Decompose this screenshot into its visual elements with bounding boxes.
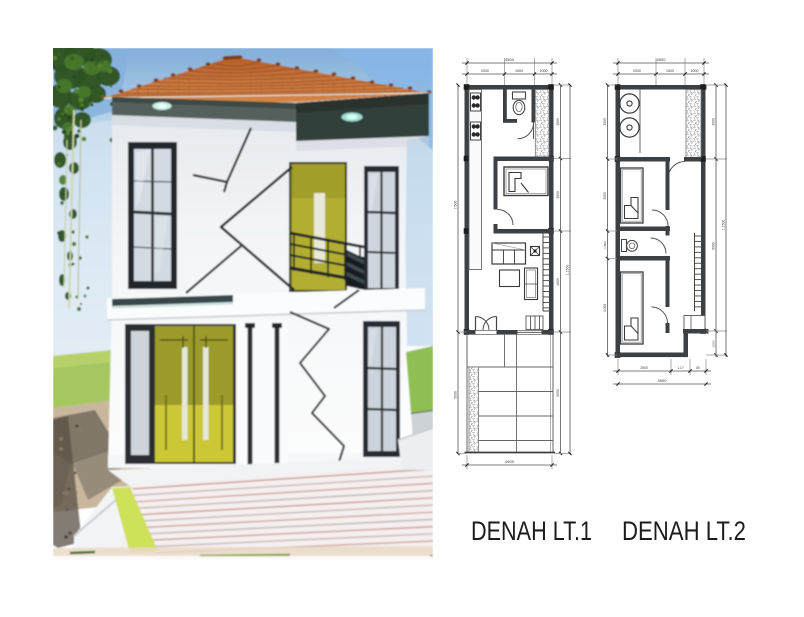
- svg-text:4500: 4500: [505, 459, 515, 464]
- svg-text:3000: 3000: [556, 191, 560, 199]
- svg-text:4500: 4500: [505, 57, 515, 62]
- svg-text:3000: 3000: [603, 192, 607, 200]
- svg-text:6000: 6000: [712, 242, 716, 250]
- svg-text:DENAH LT.2: DENAH LT.2: [622, 516, 746, 546]
- svg-text:2000: 2000: [481, 69, 489, 73]
- svg-text:1.1500: 1.1500: [566, 265, 570, 276]
- svg-text:1500: 1500: [515, 69, 523, 73]
- svg-text:1000: 1000: [540, 69, 548, 73]
- svg-text:3000: 3000: [556, 118, 560, 126]
- svg-text:4500: 4500: [657, 57, 667, 62]
- svg-text:3000: 3000: [603, 118, 607, 126]
- svg-text:1.500: 1.500: [603, 241, 607, 249]
- svg-text:2500: 2500: [640, 366, 648, 370]
- svg-text:1000: 1000: [712, 340, 716, 347]
- svg-text:1.1500: 1.1500: [722, 220, 726, 231]
- svg-text:5000: 5000: [556, 389, 560, 397]
- svg-text:5000: 5000: [454, 391, 458, 399]
- svg-text:DENAH LT.1: DENAH LT.1: [471, 516, 592, 546]
- svg-text:4.000: 4.000: [603, 304, 607, 312]
- svg-text:2000: 2000: [633, 69, 641, 73]
- svg-text:7.500: 7.500: [454, 201, 458, 210]
- svg-text:4500: 4500: [658, 378, 668, 383]
- svg-text:4000: 4000: [556, 278, 560, 286]
- svg-text:1500: 1500: [666, 69, 674, 73]
- svg-text:80: 80: [696, 366, 700, 370]
- svg-text:1.17: 1.17: [677, 366, 683, 370]
- svg-text:1000: 1000: [691, 69, 699, 73]
- svg-text:3000: 3000: [712, 118, 716, 126]
